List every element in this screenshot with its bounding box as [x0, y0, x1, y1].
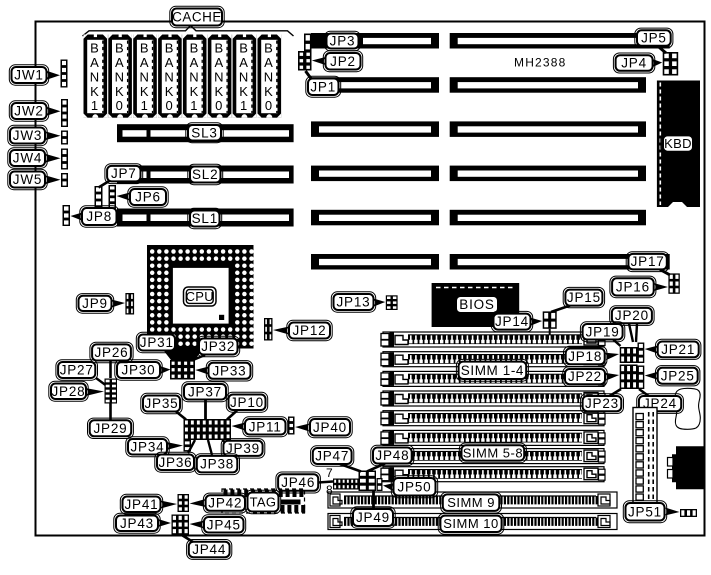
svg-text:KBD: KBD [664, 136, 692, 151]
svg-text:JP30: JP30 [122, 363, 156, 378]
svg-text:JP18: JP18 [568, 349, 602, 364]
svg-text:JP31: JP31 [140, 335, 174, 350]
svg-text:A: A [140, 55, 149, 70]
svg-text:K: K [214, 84, 223, 99]
svg-text:JP49: JP49 [356, 510, 390, 525]
svg-text:B: B [190, 41, 199, 56]
svg-text:SL2: SL2 [192, 167, 218, 182]
svg-text:JP17: JP17 [631, 254, 665, 269]
svg-text:JP16: JP16 [616, 280, 650, 295]
svg-text:JW5: JW5 [13, 172, 42, 187]
svg-text:JP4: JP4 [621, 56, 647, 71]
svg-text:JP11: JP11 [249, 419, 282, 434]
svg-text:1: 1 [141, 98, 148, 113]
svg-text:7: 7 [326, 466, 333, 480]
svg-text:JP12: JP12 [293, 323, 327, 338]
svg-text:JP22: JP22 [568, 369, 602, 384]
svg-text:B: B [165, 41, 174, 56]
svg-text:N: N [264, 69, 273, 84]
svg-text:JP37: JP37 [188, 384, 222, 399]
svg-text:K: K [239, 84, 248, 99]
svg-text:B: B [239, 41, 248, 56]
svg-text:JP20: JP20 [615, 308, 649, 323]
svg-text:JP29: JP29 [94, 421, 128, 436]
svg-text:N: N [164, 69, 173, 84]
svg-text:1: 1 [190, 98, 197, 113]
svg-text:TAG: TAG [250, 494, 277, 509]
svg-text:8: 8 [326, 483, 333, 497]
svg-text:K: K [264, 84, 273, 99]
svg-text:B: B [214, 41, 223, 56]
svg-text:0: 0 [265, 98, 272, 113]
svg-text:CACHE: CACHE [172, 10, 222, 25]
svg-text:JP14: JP14 [495, 314, 529, 329]
svg-text:JP23: JP23 [585, 396, 619, 411]
svg-text:JP51: JP51 [628, 504, 662, 519]
svg-text:JP38: JP38 [200, 457, 234, 472]
svg-text:SIMM 5-8: SIMM 5-8 [463, 445, 523, 460]
svg-text:N: N [140, 69, 149, 84]
svg-text:JP50: JP50 [398, 479, 432, 494]
svg-text:K: K [115, 84, 124, 99]
svg-text:K: K [140, 84, 149, 99]
svg-text:JW2: JW2 [14, 104, 43, 119]
svg-text:SL3: SL3 [191, 125, 217, 140]
svg-text:JP15: JP15 [567, 290, 601, 305]
svg-text:A: A [165, 55, 174, 70]
svg-text:B: B [90, 41, 99, 56]
svg-text:0: 0 [215, 98, 222, 113]
svg-text:JP32: JP32 [201, 339, 235, 354]
svg-text:JP5: JP5 [641, 31, 667, 46]
svg-text:N: N [115, 69, 124, 84]
svg-text:JP8: JP8 [86, 209, 112, 224]
svg-text:JP45: JP45 [207, 517, 241, 532]
svg-text:JP40: JP40 [313, 420, 347, 435]
svg-text:0: 0 [116, 98, 123, 113]
svg-text:SIMM 1-4: SIMM 1-4 [461, 363, 524, 378]
svg-text:JP10: JP10 [230, 395, 264, 410]
svg-text:JP25: JP25 [661, 368, 695, 383]
svg-text:JP46: JP46 [281, 475, 315, 490]
svg-text:JP2: JP2 [330, 54, 356, 69]
svg-text:JP9: JP9 [82, 296, 108, 311]
svg-text:JP7: JP7 [111, 166, 137, 181]
svg-text:JW3: JW3 [13, 128, 42, 143]
svg-text:JP28: JP28 [52, 384, 86, 399]
svg-text:SL1: SL1 [192, 211, 218, 226]
svg-text:JP33: JP33 [213, 363, 247, 378]
svg-text:1: 1 [91, 98, 98, 113]
svg-text:A: A [239, 55, 248, 70]
svg-text:A: A [115, 55, 124, 70]
svg-text:B: B [264, 41, 273, 56]
svg-text:JP47: JP47 [315, 449, 349, 464]
svg-text:B: B [115, 41, 124, 56]
svg-text:JP27: JP27 [60, 363, 94, 378]
svg-text:N: N [239, 69, 248, 84]
svg-text:CPU: CPU [186, 289, 214, 304]
svg-text:JP41: JP41 [125, 497, 159, 512]
svg-text:A: A [214, 55, 223, 70]
svg-text:K: K [165, 84, 174, 99]
svg-text:JP26: JP26 [95, 345, 129, 360]
svg-text:JP13: JP13 [337, 295, 371, 310]
svg-text:SIMM 9: SIMM 9 [447, 495, 495, 510]
svg-text:K: K [190, 84, 199, 99]
svg-text:N: N [214, 69, 223, 84]
svg-text:N: N [189, 69, 198, 84]
svg-text:JP19: JP19 [586, 324, 620, 339]
svg-text:1: 1 [240, 98, 247, 113]
svg-text:JP35: JP35 [145, 396, 179, 411]
svg-text:JW1: JW1 [14, 68, 43, 83]
svg-text:JP36: JP36 [159, 455, 193, 470]
svg-text:JP21: JP21 [661, 342, 695, 357]
svg-text:A: A [190, 55, 199, 70]
svg-text:JW4: JW4 [13, 151, 42, 166]
svg-text:B: B [140, 41, 149, 56]
svg-text:JP1: JP1 [310, 79, 336, 94]
svg-text:JP6: JP6 [135, 190, 161, 205]
svg-text:MH2388: MH2388 [514, 56, 567, 70]
svg-text:SIMM 10: SIMM 10 [443, 516, 499, 531]
svg-text:JP43: JP43 [120, 516, 154, 531]
svg-text:JP44: JP44 [192, 542, 226, 557]
svg-text:0: 0 [165, 98, 172, 113]
svg-text:N: N [90, 69, 99, 84]
svg-text:A: A [90, 55, 99, 70]
svg-text:BIOS: BIOS [459, 297, 494, 312]
svg-text:JP48: JP48 [375, 448, 409, 463]
svg-text:JP3: JP3 [330, 34, 356, 49]
svg-text:JP42: JP42 [208, 496, 242, 511]
svg-text:A: A [264, 55, 273, 70]
svg-text:K: K [90, 84, 99, 99]
